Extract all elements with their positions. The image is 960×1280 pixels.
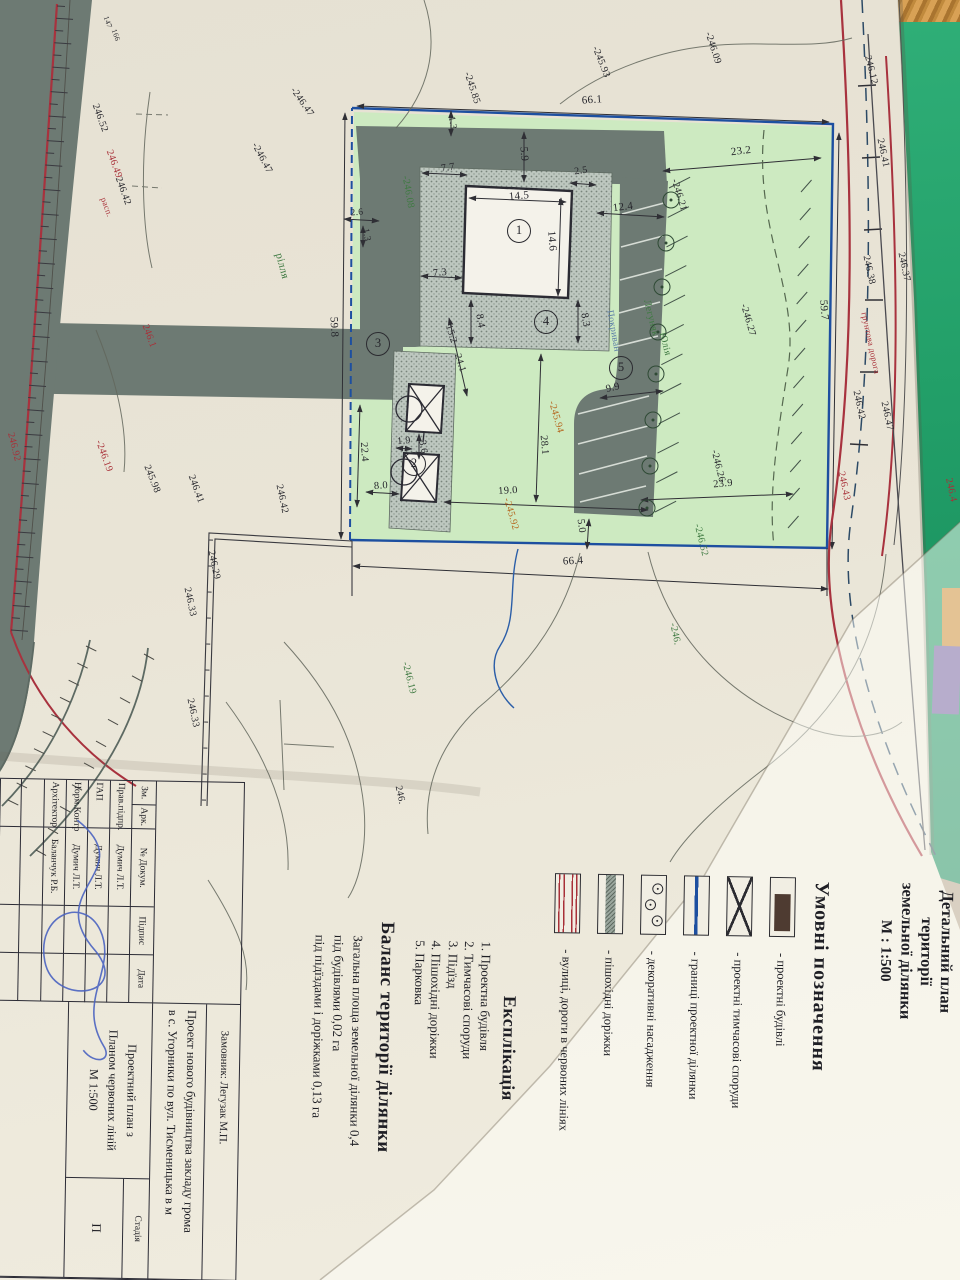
stamp-date-cell — [84, 954, 107, 1002]
swatch-walkway-icon — [597, 874, 624, 934]
stamp-empty-cell — [152, 781, 244, 1005]
plan-label: 59.7 — [817, 299, 831, 320]
tree-symbol — [642, 458, 659, 475]
sheet-scale: М : 1:500 — [875, 861, 895, 1041]
legend-label: - проектні тимчасові споруди — [728, 952, 746, 1108]
plan-callout: 4 — [534, 310, 558, 334]
stamp-date-cell — [106, 955, 129, 1003]
plan-label: 28.1 — [538, 435, 551, 455]
swatch-boundary-icon — [683, 875, 710, 935]
legend-item-walkways: - пішохідні доріжки — [589, 874, 626, 1276]
legend-label: - границі проектної ділянки — [686, 951, 704, 1099]
title-block-stamp: Зм. Арк. № Докум. Підпис Дата Прав.підпр… — [0, 778, 245, 1280]
stamp-col-date: Дата — [128, 955, 153, 1003]
plan-label: 19.0 — [498, 485, 518, 497]
tree-symbol — [658, 235, 675, 252]
plan-label: 66.4 — [562, 554, 583, 567]
stamp-empty — [0, 953, 18, 1001]
plan-callout: 5 — [609, 356, 633, 380]
tree-symbol — [639, 500, 656, 517]
swatch-red-lines-icon — [554, 873, 581, 933]
legend-label: - вулиці, дороги в червоних лініях — [556, 949, 574, 1131]
stamp-col-signature: Підпис — [129, 907, 154, 955]
stamp-drawing-line1: Проектний план з — [120, 1003, 142, 1178]
stamp-empty — [17, 953, 41, 1001]
plan-label: 8.4 — [473, 313, 486, 329]
plan-label: 59.8 — [327, 316, 340, 337]
stamp-sig-cell — [63, 906, 86, 954]
sheet-title-line1: Детальний план території — [915, 861, 958, 1042]
legend-item-buildings: - проектні будівлі — [761, 877, 798, 1279]
balance-block: Баланс території ділянки Загальна площа … — [282, 920, 398, 1280]
stamp-col-docnum: № Докум. — [130, 829, 155, 907]
stamp-name: Думич Л.Т. — [64, 828, 87, 906]
stamp-empty-row — [20, 779, 44, 827]
tree-symbol — [663, 192, 680, 209]
plan-label: 2.5 — [574, 165, 589, 178]
plan-label: 22.4 — [358, 442, 370, 462]
stamp-name: Думич Л.Т. — [86, 828, 109, 906]
stamp-date-cell — [62, 954, 85, 1002]
stamp-sig-cell — [107, 907, 130, 955]
stamp-sig-cell — [41, 905, 64, 953]
stamp-role: Архітектор — [43, 779, 66, 827]
explication-block: Експлікація 1. Проектна будівля 2. Тимча… — [407, 936, 521, 1280]
stamp-role: Прав.підпр. — [109, 781, 132, 829]
stamp-empty — [18, 905, 42, 953]
plan-label: 23.2 — [730, 144, 752, 158]
plan-label: 8.3 — [578, 312, 591, 328]
legend-block: Умовні позначення - проектні будівлі - п… — [493, 872, 835, 1280]
stamp-role: Норм.Контр — [65, 780, 88, 828]
plan-label: 7.7 — [440, 162, 455, 175]
plan-label: 12.4 — [612, 200, 634, 214]
plan-label: 66.1 — [581, 93, 602, 106]
plan-label: 1.3 — [360, 228, 372, 242]
tree-symbol — [648, 366, 665, 383]
stamp-col-ark: Арк. — [131, 805, 155, 829]
stamp-drawing-name: Проектний план з Планом червоних ліній М… — [65, 1002, 152, 1179]
swatch-building-icon — [769, 877, 796, 937]
legend-item-temp: - проектні тимчасові споруди — [718, 876, 755, 1278]
stamp-col-zm: Зм. — [132, 781, 156, 805]
stamp-drawing-line2: Планом червоних ліній — [101, 1003, 123, 1178]
swatch-plantings-icon — [640, 875, 667, 935]
stamp-signature-grid: Зм. Арк. № Докум. Підпис Дата Прав.підпр… — [0, 779, 156, 1004]
tree-symbol — [654, 279, 671, 296]
photographed-site-plan: 66.123.259.759.866.45.92.514.514.612.47.… — [0, 0, 960, 1280]
legend-label: - пішохідні доріжки — [600, 950, 617, 1056]
sheet-title: Детальний план території земельної ділян… — [887, 861, 958, 1042]
swatch-temp-structure-icon — [726, 876, 753, 936]
plan-label: 14.6 — [545, 230, 559, 251]
stamp-date-cell — [40, 953, 63, 1001]
stamp-client: Замовник: Легузак М.П. — [201, 1004, 240, 1280]
plan-label: 8.0 — [374, 480, 389, 492]
plan-label: 1.3 — [446, 116, 458, 130]
plan-label: 14.5 — [508, 189, 529, 203]
tree-symbol — [650, 324, 667, 341]
plan-callout: 1 — [507, 219, 531, 243]
plan-label: 2.6 — [350, 207, 364, 218]
stamp-empty — [0, 905, 19, 953]
plan-label: 7.3 — [432, 267, 447, 279]
stamp-empty — [19, 827, 43, 905]
legend-label: - проектні будівлі — [773, 953, 790, 1047]
legend-item-streets: - вулиці, дороги в червоних лініях — [546, 873, 583, 1275]
legend-heading: Умовні позначення — [803, 882, 833, 1280]
plan-label: 5.0 — [575, 518, 588, 533]
stamp-sig-cell — [85, 906, 108, 954]
legend-label: - декоративні насадження — [643, 951, 660, 1088]
plan-callout: 3 — [366, 332, 390, 356]
plan-label: 1.9 — [397, 435, 411, 447]
stamp-empty-row — [0, 779, 21, 827]
stamp-org-cell — [0, 1001, 68, 1278]
stamp-drawing-line3: М 1:500 — [82, 1002, 104, 1177]
legend-item-plantings: - декоративні насадження — [632, 875, 669, 1277]
stamp-stage-label: Стадія — [121, 1179, 149, 1279]
stamp-name: Думич Л.Т. — [108, 829, 131, 907]
stamp-project-name: Проект нового будівництва закладу грома … — [147, 1003, 206, 1280]
tree-symbol — [645, 412, 662, 429]
stamp-stage-value: П — [63, 1178, 123, 1279]
plan-label: 5.9 — [517, 146, 530, 162]
stamp-empty — [0, 827, 20, 905]
sheet-title-line2: земельної ділянки — [895, 861, 918, 1041]
plan-callout: 2 — [402, 452, 426, 476]
stamp-name: Баланчук Р.Б. — [42, 827, 65, 905]
legend-item-boundary: - границі проектної ділянки — [675, 875, 712, 1277]
stamp-role: ГАП — [87, 780, 110, 828]
